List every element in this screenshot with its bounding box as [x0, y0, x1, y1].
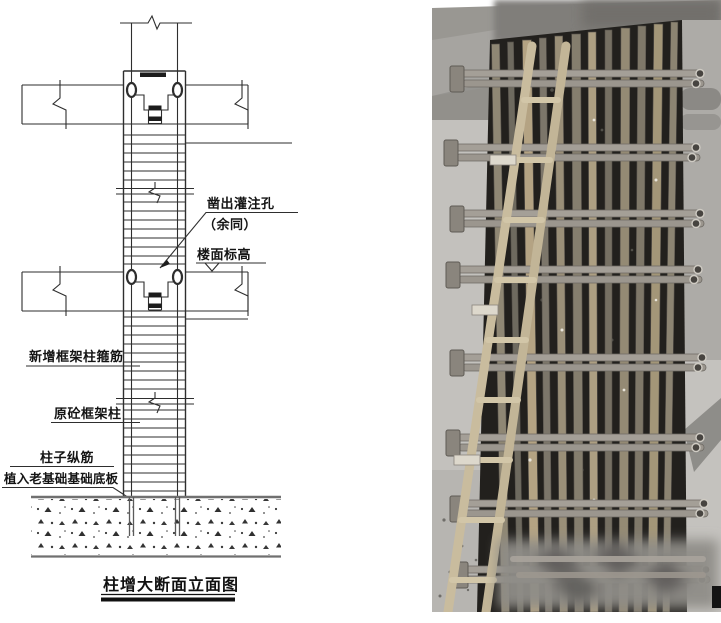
- label-pour-hole-line2: （余同）: [203, 217, 257, 232]
- label-floor-elevation: 楼面标高: [197, 247, 251, 262]
- label-new-stirrups: 新增框架柱箍筋: [29, 349, 124, 364]
- background-pipe: [680, 114, 721, 130]
- blurred-tube: [510, 556, 706, 562]
- construction-photo: [432, 0, 721, 612]
- label-pour-hole-line1: 凿出灌注孔: [207, 196, 275, 211]
- column-elevation-diagram: 凿出灌注孔 （余同） 楼面标高 新增框架柱箍筋 原砼框架柱 柱子纵筋 植入老基础…: [0, 0, 430, 623]
- label-dowel-line2: 植入老基础基础底板: [3, 471, 119, 486]
- lower-joint-detail: [132, 282, 178, 310]
- stirrups-region-c: [124, 317, 186, 389]
- figure: 凿出灌注孔 （余同） 楼面标高 新增框架柱箍筋 原砼框架柱 柱子纵筋 植入老基础…: [0, 0, 721, 623]
- beam-break-left: [53, 80, 66, 129]
- beam-break-left: [53, 266, 66, 316]
- pour-hole-ovals-lower: [127, 270, 182, 284]
- column-break-1: [116, 182, 194, 203]
- ladder-clamp: [490, 155, 516, 165]
- label-original-column: 原砼框架柱: [54, 406, 122, 421]
- foundation-concrete-hatch: [31, 499, 281, 555]
- beam-break-right: [235, 80, 248, 129]
- corner-black-mark: [712, 586, 721, 608]
- ladder-clamp: [472, 305, 498, 315]
- beam-break-right: [235, 266, 248, 316]
- diagram-title: 柱增大断面立面图: [103, 575, 239, 594]
- upper-joint-detail: [132, 73, 178, 124]
- blurred-tube: [516, 572, 706, 578]
- upper-beam: [22, 80, 292, 143]
- diagram-title-block: 柱增大断面立面图: [101, 575, 239, 600]
- ladder-clamp: [454, 455, 480, 465]
- stirrups-region-b: [124, 202, 186, 264]
- pour-hole-ovals-upper: [127, 83, 182, 97]
- label-dowel-line1: 柱子纵筋: [40, 450, 94, 465]
- leader-floor-elevation: [196, 263, 266, 271]
- stirrups-region-a: [124, 135, 186, 180]
- background-pipe: [680, 88, 721, 110]
- foundation: [31, 497, 281, 557]
- top-break-line: [120, 16, 192, 29]
